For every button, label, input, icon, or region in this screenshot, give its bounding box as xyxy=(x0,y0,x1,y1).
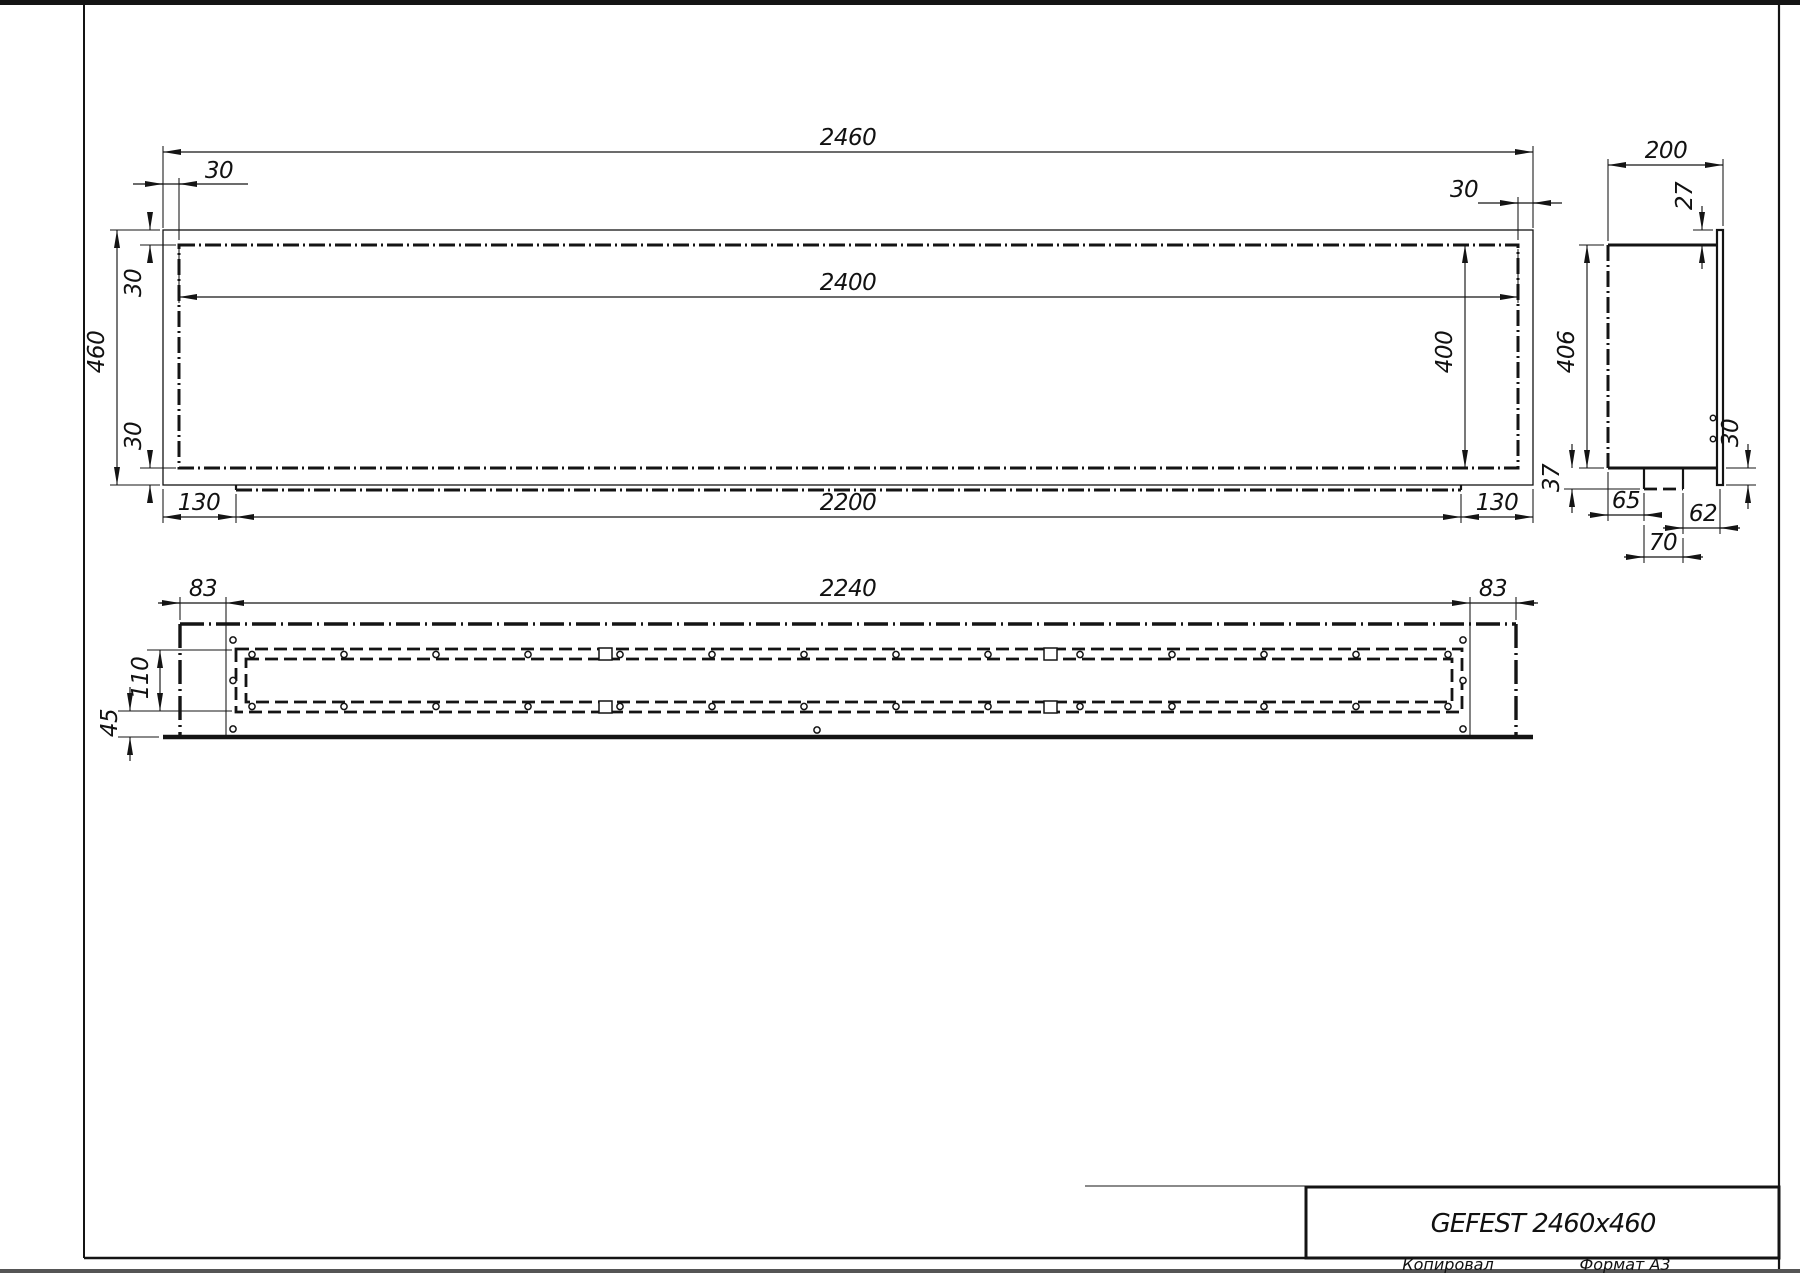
svg-text:83: 83 xyxy=(1479,576,1507,602)
svg-text:30: 30 xyxy=(205,158,233,184)
dim-tray-front: 65 xyxy=(1588,472,1662,521)
svg-text:45: 45 xyxy=(97,709,123,737)
svg-text:130: 130 xyxy=(1476,490,1518,516)
rail-inner-hidden xyxy=(246,659,1452,702)
dim-tray-offset-left: 130 xyxy=(163,489,236,523)
svg-text:27: 27 xyxy=(1672,181,1698,210)
dim-rail-offset-left: 83 xyxy=(158,576,226,620)
dim-body-height: 406 xyxy=(1554,245,1604,468)
dim-overall-width: 2460 xyxy=(163,125,1533,228)
drawing-title: GEFEST 2460x460 xyxy=(1431,1209,1656,1239)
copied-label: Копировал xyxy=(1402,1255,1493,1273)
side-view: 200 27 406 37 30 xyxy=(1539,138,1756,563)
side-hole-1 xyxy=(1710,415,1715,420)
dim-tray-width: 70 xyxy=(1624,525,1703,563)
svg-text:2400: 2400 xyxy=(820,270,877,296)
dim-inner-height: 400 xyxy=(1432,245,1465,468)
dim-inner-width: 2400 xyxy=(179,249,1518,303)
scan-bottom-bar xyxy=(0,1269,1800,1273)
svg-text:30: 30 xyxy=(121,422,147,450)
dim-rail-offset-right: 83 xyxy=(1470,576,1538,620)
format-label: Формат A3 xyxy=(1579,1255,1670,1273)
svg-text:110: 110 xyxy=(128,657,154,699)
svg-text:130: 130 xyxy=(178,490,220,516)
svg-text:70: 70 xyxy=(1649,530,1677,556)
dim-tray-back: 62 xyxy=(1663,489,1740,534)
scan-top-bar xyxy=(0,0,1800,5)
sheet-frame xyxy=(0,0,1800,1273)
title-block: GEFEST 2460x460 Копировал Формат A3 xyxy=(1085,1186,1779,1273)
plan-view: 2240 83 83 110 45 xyxy=(97,576,1538,761)
svg-text:400: 400 xyxy=(1432,331,1458,373)
svg-text:30: 30 xyxy=(121,269,147,297)
dim-rail-width: 110 xyxy=(118,650,232,711)
svg-text:30: 30 xyxy=(1450,177,1478,203)
rail-holes-bottom xyxy=(249,703,1451,709)
dim-tray-width: 2200 xyxy=(236,490,1461,523)
svg-text:30: 30 xyxy=(1718,419,1744,447)
svg-text:460: 460 xyxy=(84,331,110,373)
dim-rail-length: 2240 xyxy=(226,576,1470,603)
svg-text:37: 37 xyxy=(1539,463,1565,492)
dim-lip-top: 27 xyxy=(1672,181,1713,269)
svg-text:2240: 2240 xyxy=(820,576,877,602)
svg-text:200: 200 xyxy=(1645,138,1687,164)
dim-frame-left-bottom: 30 xyxy=(121,422,176,503)
svg-text:62: 62 xyxy=(1689,501,1717,527)
side-hole-2 xyxy=(1710,436,1715,441)
svg-text:406: 406 xyxy=(1554,331,1580,373)
front-view: 2460 30 30 30 xyxy=(84,125,1562,523)
rail-holes-top xyxy=(249,651,1451,657)
svg-text:2200: 2200 xyxy=(820,490,877,516)
corner-holes xyxy=(230,637,1466,733)
dim-depth: 200 xyxy=(1608,138,1723,241)
svg-text:65: 65 xyxy=(1612,488,1640,514)
dim-tray-offset-right: 130 xyxy=(1461,489,1533,523)
svg-text:83: 83 xyxy=(189,576,217,602)
front-outer-frame xyxy=(163,230,1533,485)
drawing-canvas: 2460 30 30 30 xyxy=(0,0,1800,1273)
dim-frame-left-top: 30 xyxy=(121,212,176,297)
svg-text:2460: 2460 xyxy=(820,125,877,151)
